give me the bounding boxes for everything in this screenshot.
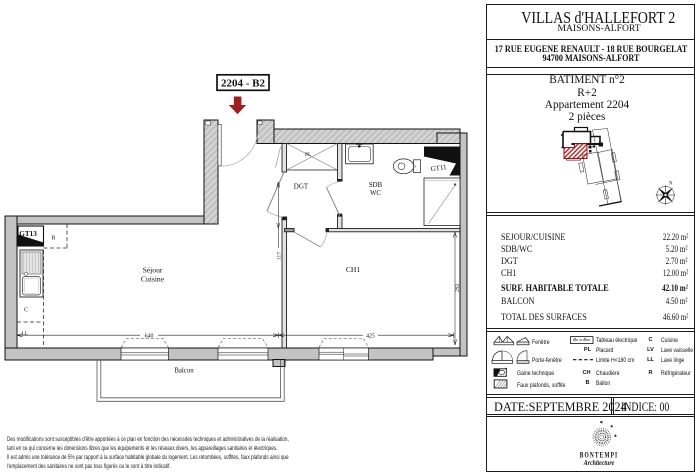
svg-text:Cuisine: Cuisine	[141, 275, 165, 284]
svg-text:292: 292	[455, 284, 461, 293]
svg-text:425: 425	[366, 333, 375, 339]
svg-text:117: 117	[276, 252, 282, 260]
svg-text:PL: PL	[305, 152, 312, 158]
svg-text:Architecture: Architecture	[583, 459, 614, 467]
svg-text:Balcon: Balcon	[174, 368, 194, 375]
svg-text:DGT: DGT	[294, 183, 309, 191]
svg-text:N: N	[668, 182, 673, 187]
svg-text:LL: LL	[22, 331, 29, 337]
svg-text:CH1: CH1	[346, 265, 361, 274]
svg-text:SDB: SDB	[369, 182, 383, 189]
svg-text:640: 640	[145, 333, 154, 339]
svg-text:Séjour: Séjour	[143, 266, 163, 275]
svg-text:2204 - B2: 2204 - B2	[221, 78, 266, 90]
svg-text:R: R	[52, 236, 56, 242]
svg-text:WC: WC	[370, 190, 381, 197]
svg-text:C: C	[24, 308, 28, 314]
